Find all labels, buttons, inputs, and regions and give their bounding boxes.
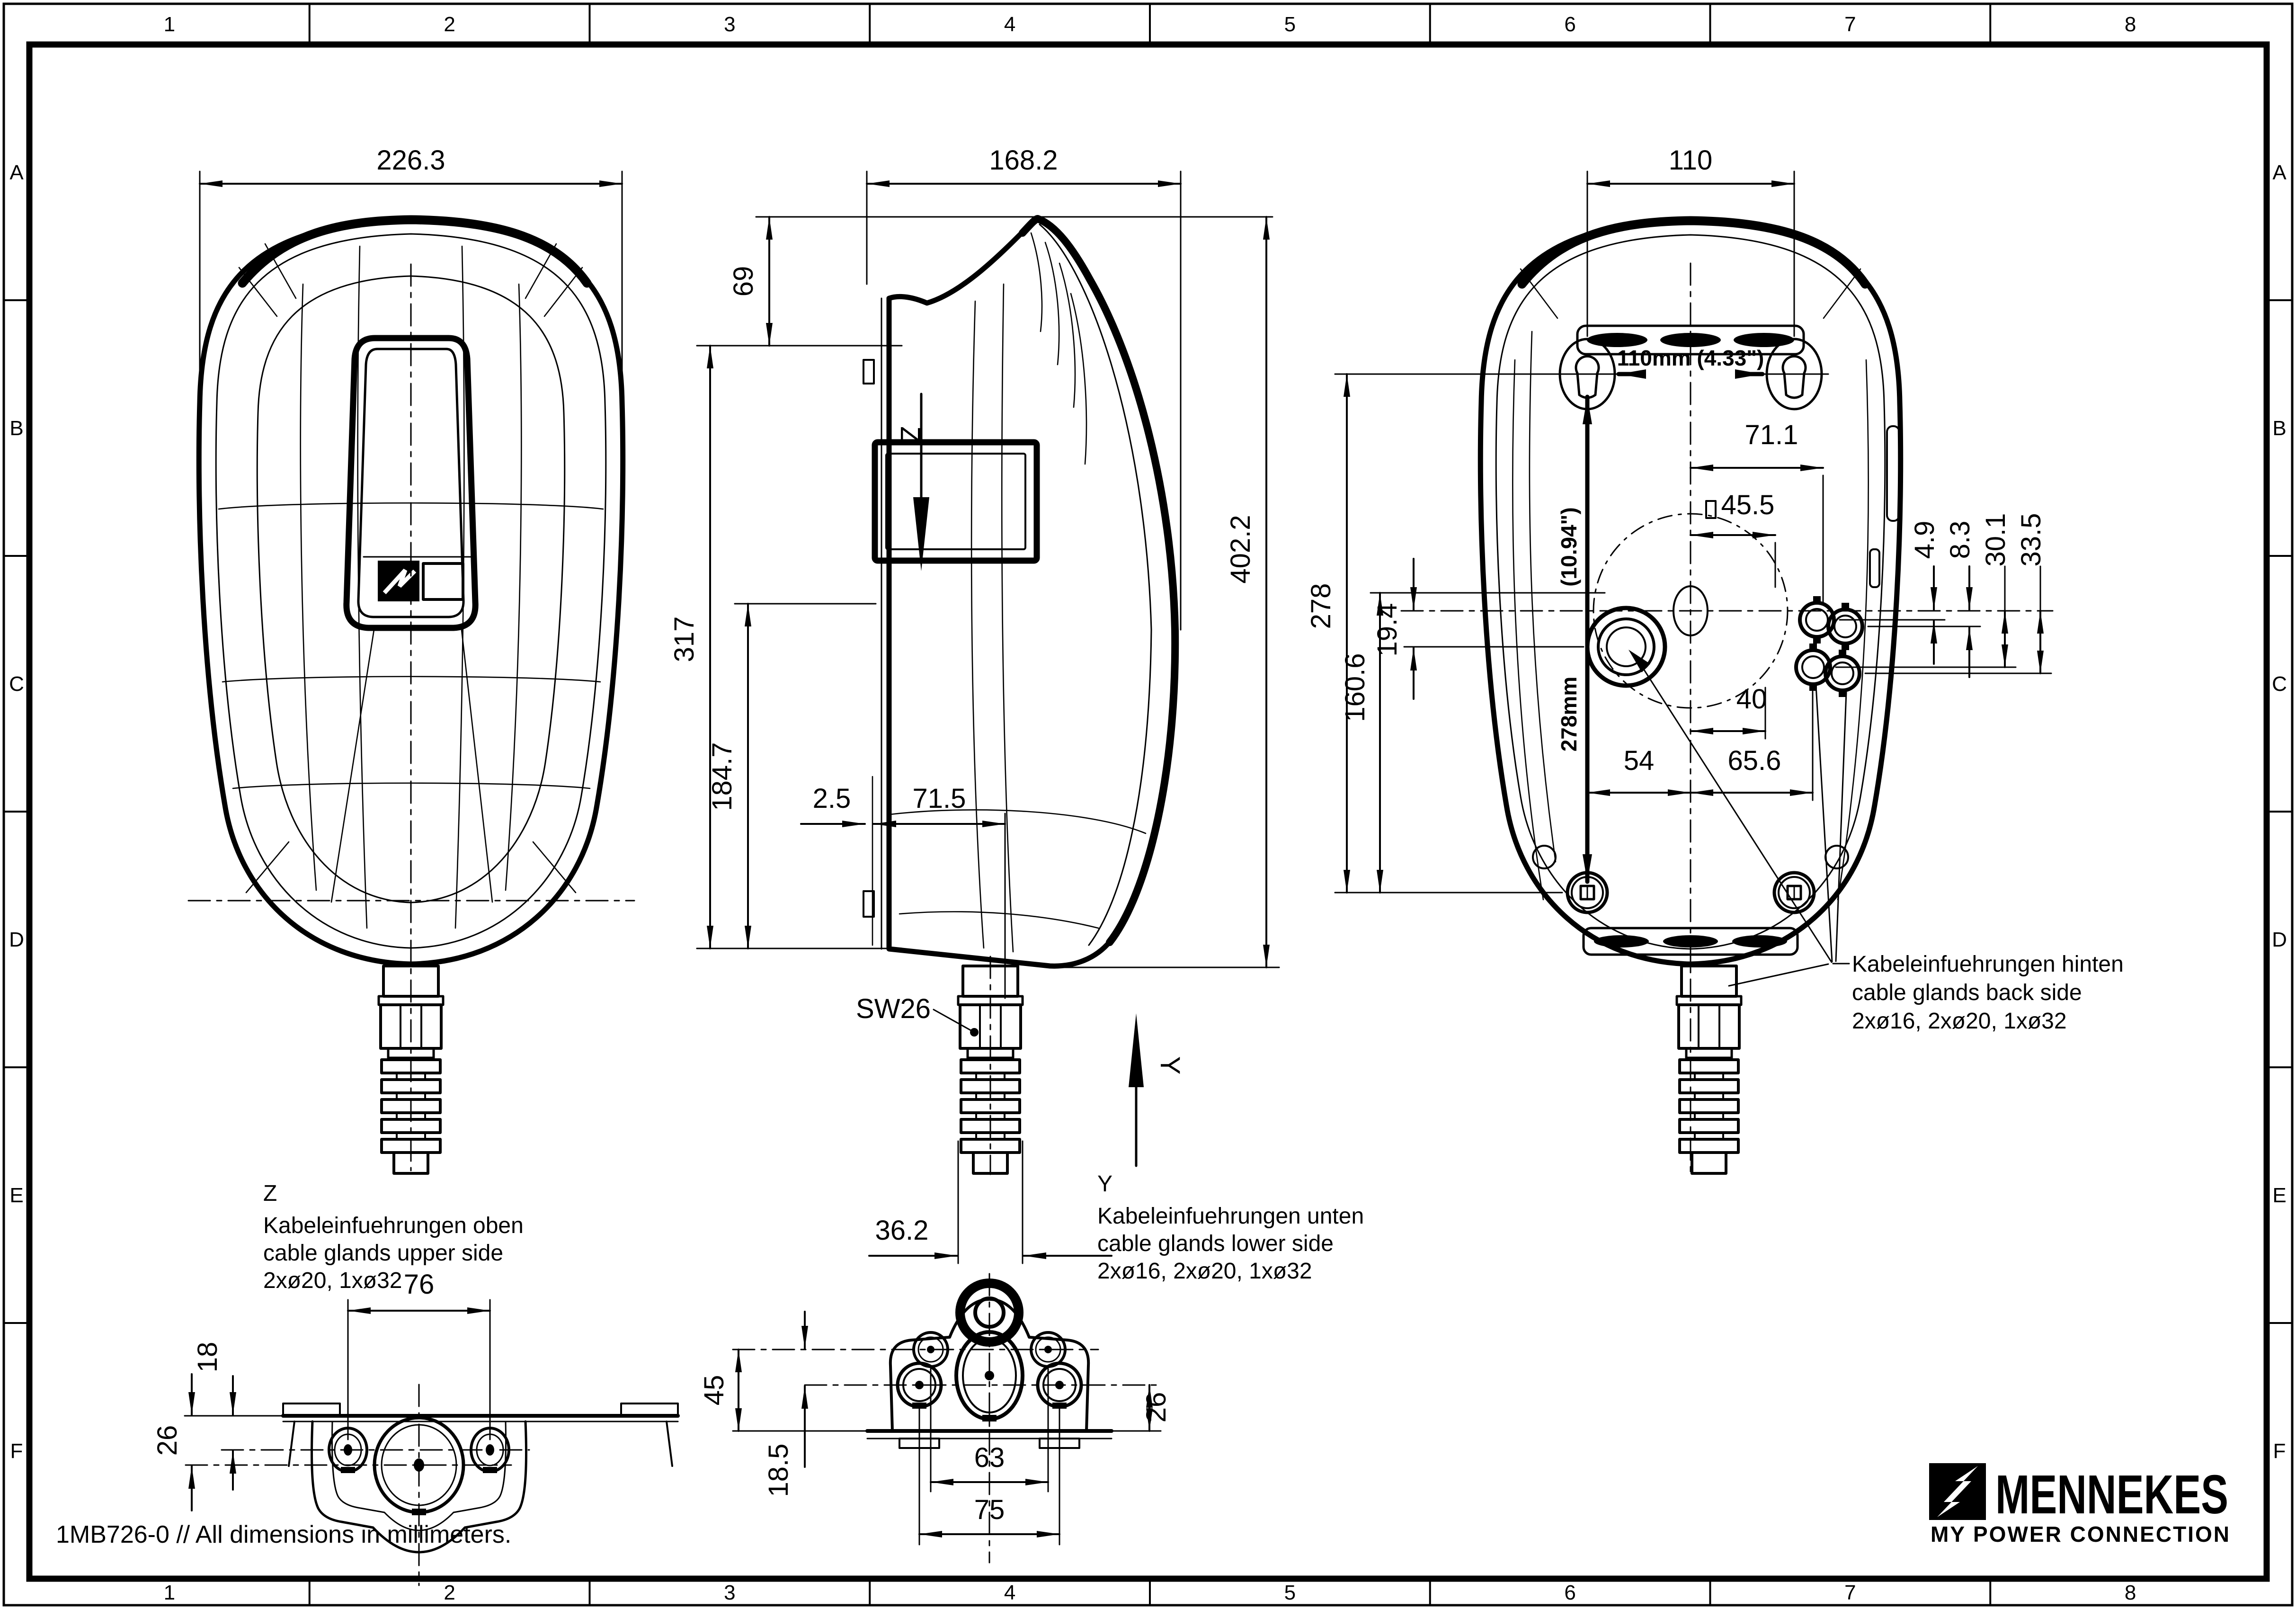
- dim-label: 26: [152, 1425, 183, 1456]
- dim-label: 76: [404, 1269, 435, 1300]
- dim-label: 45: [699, 1375, 730, 1406]
- dim-z-26: 26: [152, 1374, 192, 1511]
- zone-col-label-top: 3: [724, 13, 735, 36]
- note-line: Kabeleinfuehrungen oben: [263, 1213, 524, 1238]
- dim-bold-278mm: (10.94") 278mm: [1557, 397, 1587, 882]
- dim-label: 402.2: [1225, 515, 1256, 583]
- zone-col-label-top: 5: [1284, 13, 1296, 36]
- dim-label: 317: [669, 617, 700, 662]
- dim-label: 18.5: [763, 1444, 794, 1497]
- note-back-glands: Kabeleinfuehrungen hinten cable glands b…: [1852, 952, 2124, 1034]
- back-cable-gland: [1677, 966, 1741, 1173]
- zone-row-label-right: E: [2272, 1184, 2286, 1207]
- dim-y-18-5: 18.5: [763, 1312, 805, 1497]
- note-line: Kabeleinfuehrungen hinten: [1852, 952, 2124, 977]
- zone-col-label-top: 2: [444, 13, 455, 36]
- dim-69: 69: [728, 217, 1273, 346]
- dim-label: 63: [974, 1442, 1005, 1473]
- dim-label: 54: [1624, 745, 1655, 776]
- zone-col-label-top: 1: [164, 13, 175, 36]
- zone-col-label-bottom: 7: [1844, 1581, 1856, 1604]
- zone-col-label-bottom: 8: [2125, 1581, 2136, 1604]
- dim-label: 71.1: [1745, 420, 1798, 450]
- y-direction-arrow: Y: [1129, 1013, 1185, 1166]
- axis-y-label: Y: [1155, 1056, 1185, 1075]
- note-upper-glands: Z Kabeleinfuehrungen oben cable glands u…: [263, 1181, 524, 1293]
- dim-label: 69: [728, 266, 759, 297]
- drawing-canvas: 1122334455667788AABBCCDDEEFF 226.3: [0, 0, 2296, 1609]
- dim-label: (10.94"): [1557, 507, 1581, 587]
- z-direction-arrow: Z: [895, 394, 929, 571]
- dim-label-168: 168.2: [989, 145, 1058, 176]
- dim-label: 4.9: [1909, 521, 1940, 559]
- zone-col-label-top: 4: [1004, 13, 1015, 36]
- zone-row-label-left: E: [9, 1184, 23, 1207]
- dim-label: 226.3: [376, 145, 445, 176]
- dim-label: 71.5: [913, 783, 966, 814]
- dim-label: 184.7: [707, 742, 738, 811]
- zone-row-label-left: D: [9, 928, 24, 951]
- zone-labels: 1122334455667788AABBCCDDEEFF: [9, 13, 2287, 1604]
- dim-label: 30.1: [1980, 513, 2011, 567]
- front-view: 226.3: [188, 145, 634, 1173]
- detail-y-view: Y Kabeleinfuehrungen unten cable glands …: [699, 1171, 1364, 1563]
- zone-row-label-right: D: [2272, 928, 2287, 951]
- zone-row-label-left: F: [10, 1439, 23, 1463]
- zone-col-label-bottom: 1: [164, 1581, 175, 1604]
- side-view: Z Y SW26 69 71.5 402.2 168.2 69: [669, 145, 1279, 1263]
- zone-row-label-right: F: [2273, 1439, 2286, 1463]
- note-lower-glands: Y Kabeleinfuehrungen unten cable glands …: [1097, 1171, 1364, 1284]
- zone-row-label-left: B: [9, 417, 23, 440]
- front-panel-logo-icon: [378, 561, 463, 601]
- dim-45-5: 45.5: [1691, 490, 1775, 587]
- dim-54: 54: [1587, 745, 1691, 793]
- technical-drawing-sheet: 1122334455667788AABBCCDDEEFF 226.3: [0, 0, 2296, 1609]
- zone-row-label-right: B: [2272, 417, 2286, 440]
- dim-label: 40: [1736, 684, 1767, 715]
- drawing-title: 1MB726-0 // All dimensions in millimeter…: [56, 1521, 511, 1548]
- dim-19-4: 19.4: [1372, 559, 1584, 699]
- note-line: cable glands upper side: [263, 1241, 503, 1266]
- dim-label: 110: [1669, 145, 1712, 176]
- zone-col-label-top: 7: [1844, 13, 1856, 36]
- axis-z-label: Z: [895, 426, 926, 443]
- dim-label: 278mm: [1557, 677, 1581, 752]
- note-line: cable glands lower side: [1097, 1231, 1334, 1256]
- zone-col-label-top: 6: [1564, 13, 1575, 36]
- back-gland-large: [1587, 608, 1665, 686]
- dim-40: 40: [1691, 684, 1767, 739]
- note-line: cable glands back side: [1852, 980, 2082, 1005]
- zone-row-label-left: A: [9, 161, 24, 184]
- dim-label: 18: [192, 1342, 223, 1373]
- dim-label: 65.6: [1728, 745, 1781, 776]
- zone-col-label-bottom: 4: [1004, 1581, 1015, 1604]
- note-line: Kabeleinfuehrungen unten: [1097, 1204, 1364, 1229]
- zone-row-label-right: C: [2272, 672, 2287, 696]
- zone-col-label-bottom: 5: [1284, 1581, 1296, 1604]
- brand-block: MENNEKES MY POWER CONNECTION: [1929, 1463, 2231, 1546]
- brand-wordmark: MENNEKES: [1995, 1464, 2228, 1525]
- dim-label: 36.2: [875, 1215, 929, 1246]
- dim-184-7: 184.7: [707, 604, 876, 948]
- zone-col-label-bottom: 3: [724, 1581, 735, 1604]
- dim-label: 26: [1141, 1392, 1172, 1423]
- zone-row-label-right: A: [2272, 161, 2287, 184]
- zone-col-label-top: 8: [2125, 13, 2136, 36]
- dim-label: 278: [1306, 583, 1336, 629]
- note-label: Z: [263, 1181, 277, 1206]
- note-label: Y: [1097, 1171, 1112, 1197]
- mount-hole-bottom-right: [1774, 873, 1814, 912]
- note-line: 2xø20, 1xø32: [263, 1268, 402, 1293]
- dim-z-18: 18: [185, 1342, 283, 1490]
- dim-label: 2.5: [813, 783, 851, 814]
- dim-label: 160.6: [1340, 653, 1370, 722]
- back-view: 110mm (4.33") (10.94") 278mm: [1306, 145, 2124, 1177]
- sw26-label: SW26: [856, 993, 931, 1024]
- dim-label: 45.5: [1721, 490, 1775, 520]
- mennekes-logo-icon: [1929, 1463, 1986, 1520]
- zone-row-label-left: C: [9, 672, 24, 696]
- note-line: 2xø16, 2xø20, 1xø32: [1097, 1259, 1312, 1284]
- zone-col-label-bottom: 2: [444, 1581, 455, 1604]
- zone-col-label-bottom: 6: [1564, 1581, 1575, 1604]
- dim-317: 317: [669, 346, 888, 948]
- brand-tagline: MY POWER CONNECTION: [1931, 1522, 2231, 1546]
- dim-label: 8.3: [1945, 521, 1976, 559]
- dim-label: 19.4: [1372, 603, 1403, 657]
- dim-y-45: 45: [699, 1350, 739, 1431]
- dim-y-26: 26: [1141, 1385, 1172, 1431]
- dim-label: 75: [974, 1494, 1005, 1525]
- note-line: 2xø16, 2xø20, 1xø32: [1852, 1009, 2067, 1034]
- dim-label: 33.5: [2016, 513, 2047, 567]
